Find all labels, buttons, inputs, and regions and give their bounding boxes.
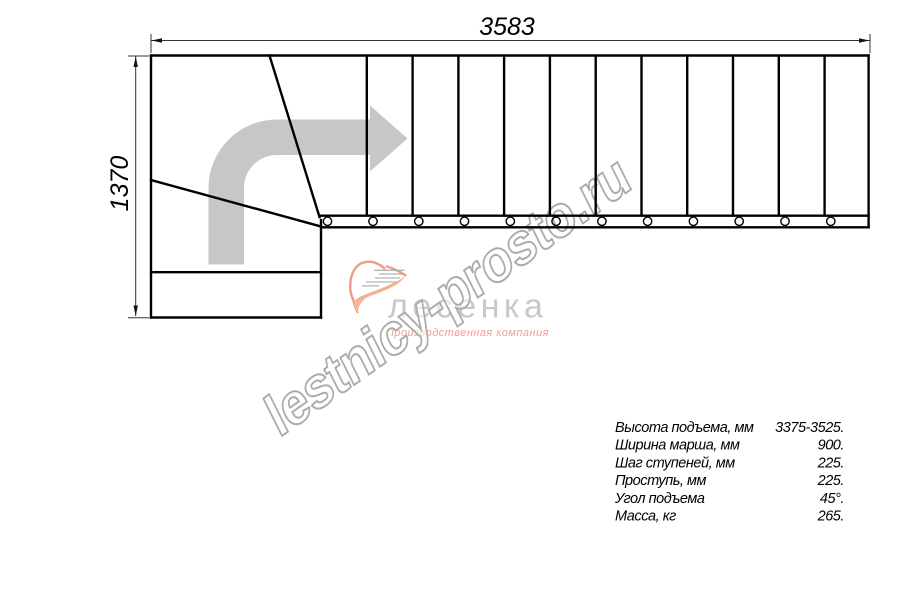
svg-text:Угол подъема: Угол подъема — [614, 491, 705, 507]
svg-text:Масса, кг: Масса, кг — [615, 509, 676, 525]
svg-text:1370: 1370 — [106, 156, 134, 212]
svg-text:225.: 225. — [817, 455, 844, 471]
svg-text:900.: 900. — [818, 438, 844, 454]
svg-text:Ширина марша, мм: Ширина марша, мм — [615, 438, 740, 454]
svg-text:3375-3525.: 3375-3525. — [775, 420, 844, 436]
svg-text:45°.: 45°. — [820, 491, 844, 507]
svg-text:Высота подъема, мм: Высота подъема, мм — [615, 420, 754, 436]
svg-text:265.: 265. — [817, 509, 844, 525]
svg-text:Шаг ступеней, мм: Шаг ступеней, мм — [615, 455, 735, 471]
svg-text:225.: 225. — [817, 473, 844, 489]
svg-text:3583: 3583 — [479, 13, 535, 41]
svg-text:Проступь, мм: Проступь, мм — [615, 473, 707, 489]
